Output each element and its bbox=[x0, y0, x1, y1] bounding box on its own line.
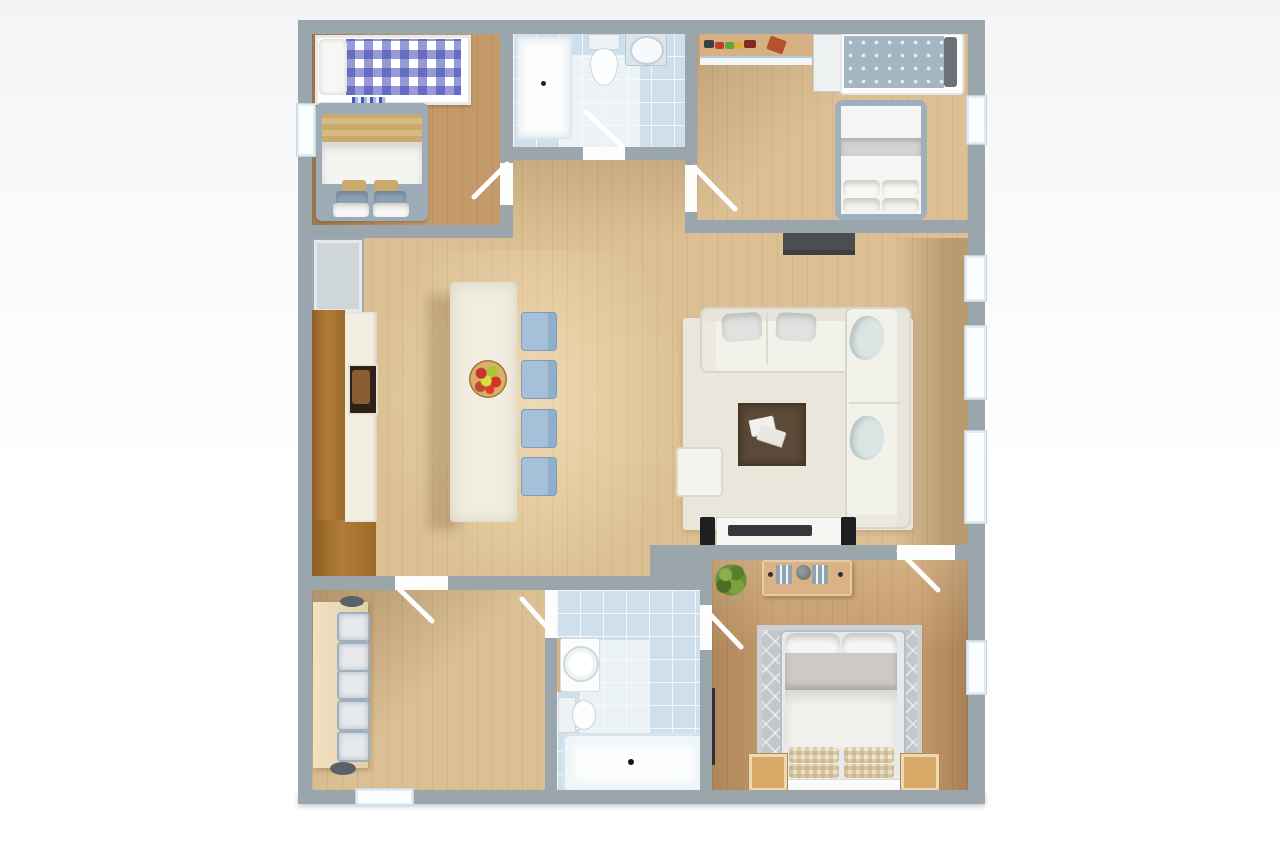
door-leaf-bedroomTL bbox=[474, 164, 507, 197]
floor-plan bbox=[0, 0, 1280, 853]
door-leaf-bathTop bbox=[586, 112, 622, 146]
door-leaf-bedroomTR bbox=[694, 167, 735, 209]
door-leaves bbox=[0, 0, 1280, 853]
door-leaf-office-right bbox=[522, 599, 553, 634]
door-leaf-bedroomBR-main bbox=[899, 551, 938, 590]
door-leaf-bedroomBR-hall bbox=[704, 608, 741, 647]
door-leaf-office-top bbox=[399, 589, 432, 621]
